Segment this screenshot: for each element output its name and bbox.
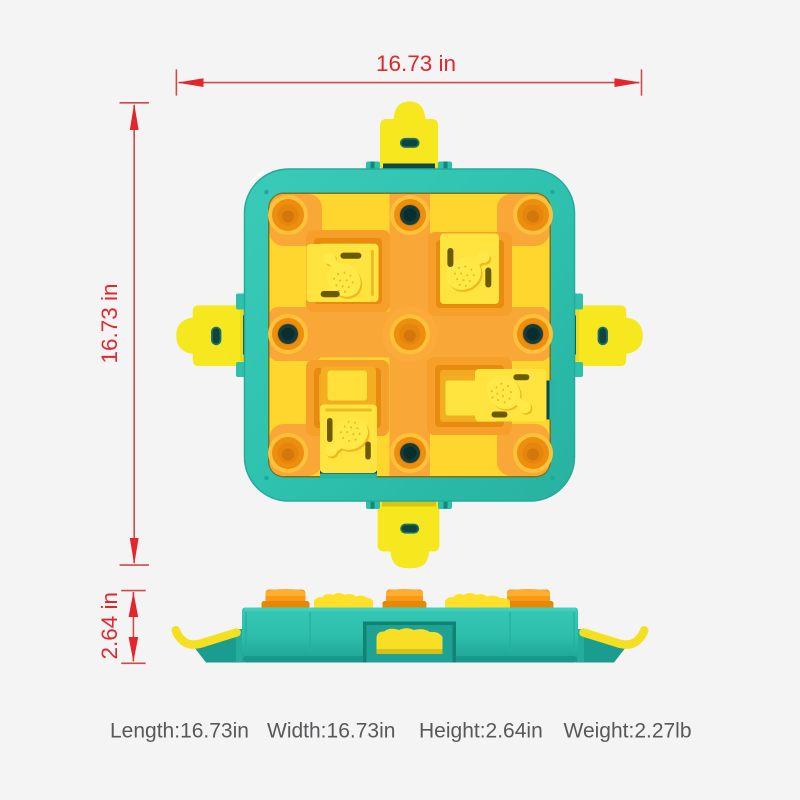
svg-text:16.73 in: 16.73 in [97,283,122,363]
svg-text:Weight:2.27lb: Weight:2.27lb [564,720,692,743]
svg-text:2.64 in: 2.64 in [97,592,122,660]
svg-text:Width:16.73in: Width:16.73in [267,720,395,743]
svg-text:16.73 in: 16.73 in [376,51,456,76]
svg-text:Height:2.64in: Height:2.64in [419,720,543,743]
svg-text:Length:16.73in: Length:16.73in [110,720,249,743]
